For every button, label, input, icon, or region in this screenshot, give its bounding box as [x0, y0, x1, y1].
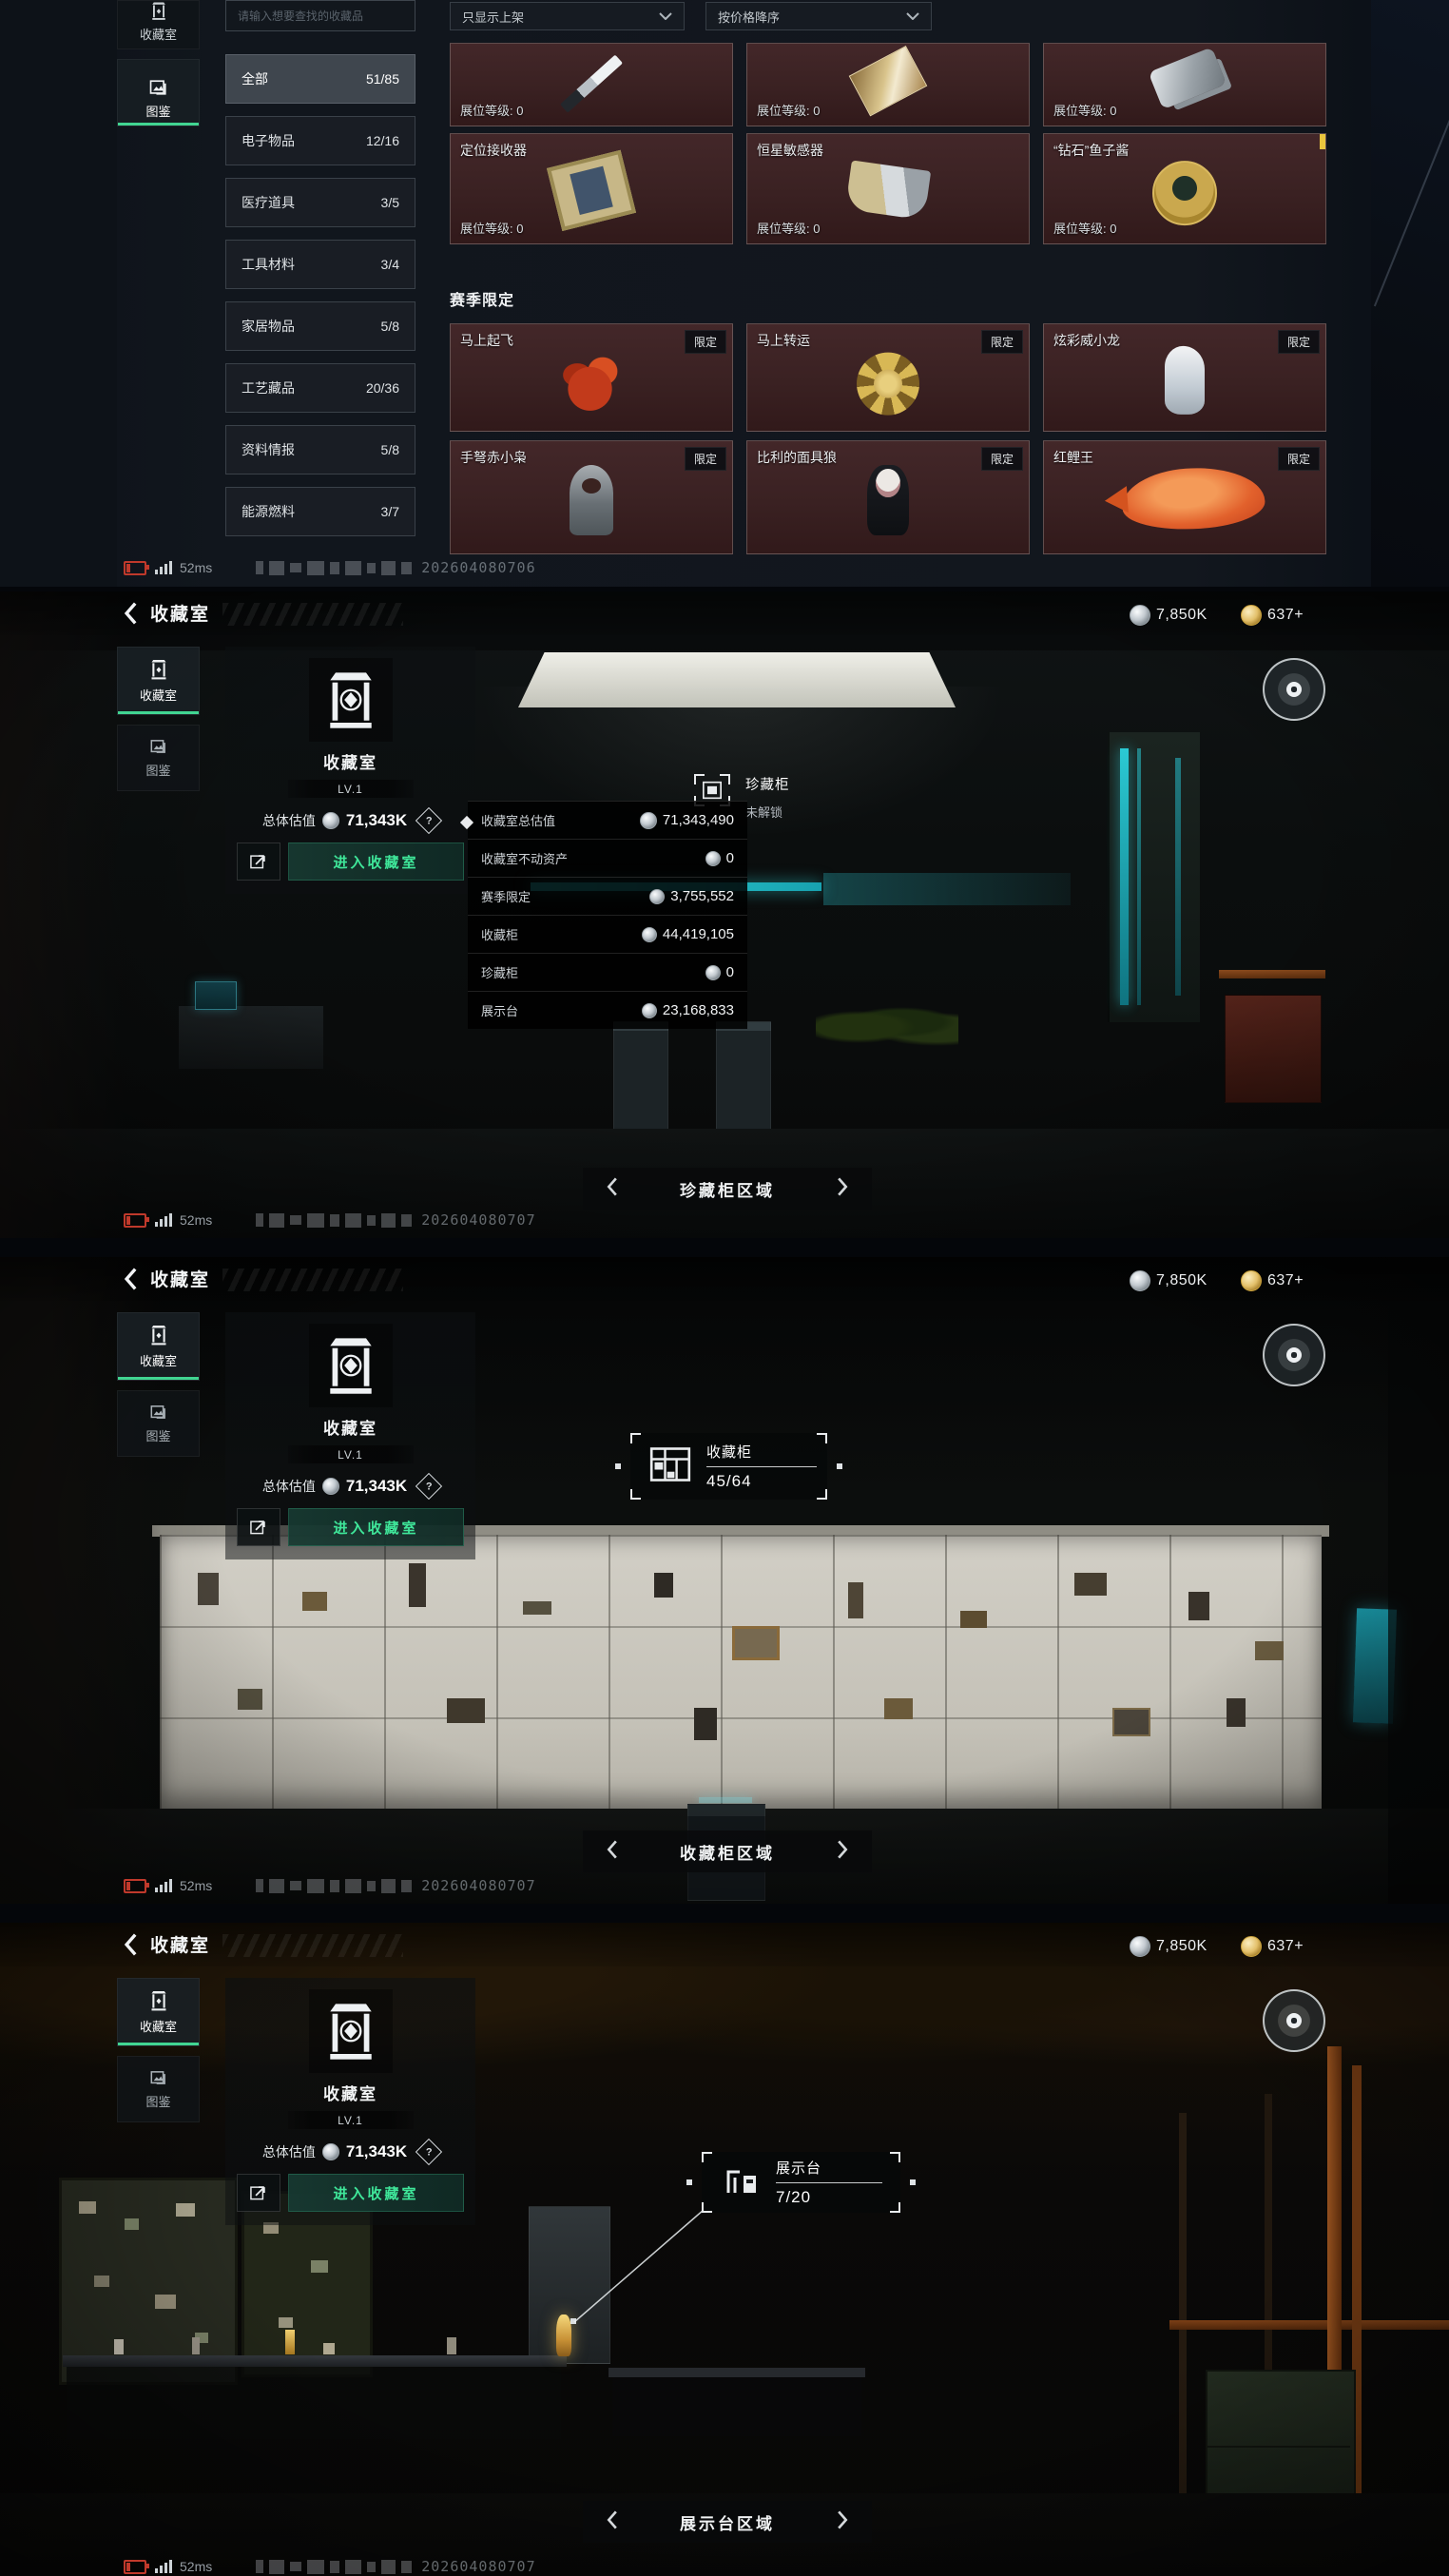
tab-collection-room[interactable]: 收藏室 — [117, 1978, 200, 2046]
ping-value: 52ms — [180, 1878, 212, 1893]
battery-icon — [124, 561, 146, 575]
tab-label: 图鉴 — [145, 761, 170, 779]
area-nav: 珍藏柜区域 — [583, 1168, 872, 1210]
area-name: 展示台区域 — [680, 2510, 775, 2534]
collection-room-big-icon — [324, 1335, 377, 1396]
tab-codex[interactable]: 图鉴 — [117, 59, 200, 126]
gold-coin-icon — [1241, 1270, 1262, 1291]
page-title: 收藏室 — [150, 600, 210, 626]
item-name: 恒星敏感器 — [757, 141, 823, 160]
marker-title: 展示台 — [776, 2158, 882, 2178]
collection-room-big-icon — [324, 669, 377, 730]
item-tile[interactable]: 展位等级: 0 — [450, 43, 733, 126]
battery-icon — [124, 2560, 146, 2574]
help-icon[interactable]: ? — [415, 1473, 442, 1500]
value-label: 总体估值 — [262, 1477, 316, 1496]
treasure-area-panel: 收藏室 7,850K 637+ 收藏室 图鉴 收藏室 LV.1 总体估值 71,… — [0, 591, 1449, 1238]
category-household[interactable]: 家居物品5/8 — [225, 301, 415, 351]
category-label: 资料情报 — [241, 440, 295, 459]
tooltip-row: 收藏室不动资产0 — [468, 839, 747, 877]
category-medical[interactable]: 医疗道具3/5 — [225, 178, 415, 227]
value-amount: 71,343K — [346, 1477, 407, 1496]
item-tile-diamond-caviar[interactable]: “钻石”鱼子酱 展位等级: 0 — [1043, 133, 1326, 244]
category-count: 3/4 — [381, 257, 399, 272]
tab-label: 收藏室 — [140, 2017, 177, 2035]
status-bar: 52ms 202604080707 — [124, 1877, 536, 1894]
battery-icon — [124, 1213, 146, 1228]
watermark-blocks — [256, 1879, 412, 1893]
silver-coin-icon — [642, 927, 657, 942]
watermark-number: 202604080707 — [421, 1877, 535, 1894]
tab-label: 图鉴 — [145, 1426, 170, 1444]
currency-silver[interactable]: 7,850K — [1130, 1936, 1207, 1957]
marker-title: 收藏柜 — [706, 1442, 817, 1462]
category-count: 3/5 — [381, 195, 399, 210]
room-total-value-row: 总体估值 71,343K ? — [225, 811, 475, 830]
tab-collection-room[interactable]: 收藏室 — [117, 1312, 200, 1381]
category-tools[interactable]: 工具材料3/4 — [225, 240, 415, 289]
app-root: 收藏室 图鉴 只显示上架 按价格降序 全部51/85 电子物品12/16 医疗道… — [0, 0, 1449, 2576]
watermark-number: 202604080706 — [421, 559, 535, 576]
room-title: 收藏室 — [225, 2081, 475, 2104]
category-count: 12/16 — [366, 133, 399, 148]
gold-coin-icon — [1241, 605, 1262, 626]
item-name: “钻石”鱼子酱 — [1053, 141, 1129, 160]
item-name: 马上转运 — [757, 331, 810, 350]
cabinet-count-marker[interactable]: 收藏柜 45/64 — [630, 1433, 827, 1500]
sort-label: 按价格降序 — [718, 8, 780, 26]
collection-room-icon — [150, 1, 167, 21]
marker-divider — [776, 2182, 882, 2183]
booth-level: 展位等级: 0 — [757, 101, 820, 119]
tooltip-row: 展示台23,168,833 — [468, 991, 747, 1029]
season-tile-red-carp[interactable]: 红鲤王 限定 — [1043, 440, 1326, 554]
back-button[interactable] — [122, 1932, 139, 1962]
back-button[interactable] — [122, 1267, 139, 1296]
filter-label: 只显示上架 — [462, 8, 524, 26]
room-icon-box — [309, 658, 393, 742]
red-horse-art — [556, 353, 627, 416]
gold-amount: 637+ — [1267, 1272, 1304, 1289]
tooltip-row: 赛季限定3,755,552 — [468, 877, 747, 915]
marker-count: 7/20 — [776, 2188, 882, 2207]
booth-level: 展位等级: 0 — [1053, 219, 1116, 237]
limited-badge: 限定 — [981, 447, 1023, 471]
cabinet-marker-icon — [649, 1446, 691, 1487]
silver-coin-icon — [705, 851, 721, 866]
ping-value: 52ms — [180, 2559, 212, 2574]
category-count: 51/85 — [366, 71, 399, 87]
category-intel[interactable]: 资料情报5/8 — [225, 425, 415, 475]
tab-label: 图鉴 — [145, 2092, 170, 2110]
tab-codex[interactable]: 图鉴 — [117, 1390, 200, 1457]
header-strip — [0, 1923, 1449, 1966]
currency-silver[interactable]: 7,850K — [1130, 605, 1207, 626]
season-tile-horse-takeoff[interactable]: 马上起飞 限定 — [450, 323, 733, 432]
codex-icon — [148, 77, 169, 98]
tab-codex[interactable]: 图鉴 — [117, 2056, 200, 2122]
watermark-blocks — [256, 1213, 412, 1228]
booth-level: 展位等级: 0 — [757, 219, 820, 237]
marker-texts: 展示台 7/20 — [776, 2158, 882, 2207]
star-sensor-art — [845, 160, 931, 220]
room-level-badge: LV.1 — [288, 1445, 414, 1463]
area-name: 收藏柜区域 — [680, 1840, 775, 1864]
category-all[interactable]: 全部51/85 — [225, 54, 415, 104]
codex-icon — [149, 737, 168, 756]
room-total-value-row: 总体估值 71,343K ? — [225, 2142, 475, 2161]
silver-amount: 7,850K — [1156, 607, 1207, 624]
prev-area-button[interactable] — [606, 1839, 618, 1865]
watermark-number: 202604080707 — [421, 1211, 535, 1229]
lightning-streak — [1374, 112, 1449, 307]
status-bar: 52ms 202604080707 — [124, 1211, 536, 1229]
vignette — [0, 1257, 1449, 1904]
next-area-button[interactable] — [837, 1839, 849, 1865]
marker-texts: 珍藏柜 未解锁 — [745, 774, 790, 821]
category-label: 工艺藏品 — [241, 378, 295, 397]
collection-room-big-icon — [324, 2001, 377, 2062]
room-icon-box — [309, 1324, 393, 1407]
prev-area-button[interactable] — [606, 1176, 618, 1202]
share-icon — [248, 2182, 269, 2203]
collection-room-icon — [149, 658, 168, 681]
puppet-figure-art — [867, 465, 909, 535]
title-hatch-decoration — [222, 1269, 403, 1291]
area-name: 珍藏柜区域 — [680, 1177, 775, 1201]
chevron-down-icon — [659, 12, 672, 20]
codex-icon — [149, 2068, 168, 2087]
area-nav: 展示台区域 — [583, 2501, 872, 2543]
scalpel-item-art — [560, 54, 623, 112]
enter-collection-room-button[interactable]: 进入收藏室 — [288, 843, 464, 881]
share-icon — [248, 851, 269, 872]
page-title: 收藏室 — [150, 1266, 210, 1291]
item-name: 炫彩威小龙 — [1053, 331, 1120, 350]
marker-subtitle: 未解锁 — [745, 803, 790, 821]
booth-level: 展位等级: 0 — [1053, 101, 1116, 119]
season-tile-horse-fortune[interactable]: 马上转运 限定 — [746, 323, 1030, 432]
active-tab-underline — [118, 123, 199, 126]
silver-coin-icon — [1130, 1270, 1150, 1291]
active-tab-underline — [118, 2043, 199, 2045]
tab-label: 收藏室 — [140, 686, 177, 704]
collection-room-icon — [149, 1989, 168, 2012]
silver-coin-icon — [705, 965, 721, 980]
active-tab-underline — [118, 711, 199, 714]
item-tile[interactable]: 展位等级: 0 — [746, 43, 1030, 126]
currency-gold[interactable]: 637+ — [1241, 605, 1304, 626]
marker-count: 45/64 — [706, 1472, 817, 1491]
silver-amount: 7,850K — [1156, 1272, 1207, 1289]
cabinet-area-panel: 收藏室 7,850K 637+ 收藏室 图鉴 收藏室 LV.1 总体估值 71,… — [0, 1257, 1449, 1904]
active-tab-underline — [118, 1377, 199, 1380]
ping-value: 52ms — [180, 560, 212, 575]
category-count: 3/7 — [381, 504, 399, 519]
status-bar: 52ms 202604080706 — [124, 559, 536, 576]
item-name: 手弩赤小枭 — [460, 448, 527, 467]
gold-card-item-art — [849, 46, 928, 116]
marker-divider — [706, 1466, 817, 1467]
battery-icon — [124, 1879, 146, 1893]
silver-coin-icon — [1130, 605, 1150, 626]
category-label: 能源燃料 — [241, 502, 295, 521]
category-label: 全部 — [241, 69, 268, 88]
category-electronics[interactable]: 电子物品12/16 — [225, 116, 415, 165]
search-box[interactable] — [225, 0, 415, 31]
booth-level: 展位等级: 0 — [460, 101, 523, 119]
tab-label: 收藏室 — [140, 25, 177, 43]
marker-title: 珍藏柜 — [745, 774, 790, 794]
item-tile-star-sensor[interactable]: 恒星敏感器 展位等级: 0 — [746, 133, 1030, 244]
watermark-number: 202604080707 — [421, 2558, 535, 2575]
enter-collection-room-button[interactable]: 进入收藏室 — [288, 1508, 464, 1546]
limited-badge: 限定 — [1278, 447, 1320, 471]
season-tile-billy-mask[interactable]: 比利的面具狼 限定 — [746, 440, 1030, 554]
silver-coin-icon — [649, 889, 665, 904]
room-title: 收藏室 — [225, 749, 475, 773]
vignette — [0, 1923, 1449, 2576]
room-level-badge: LV.1 — [288, 780, 414, 798]
category-energy[interactable]: 能源燃料3/7 — [225, 487, 415, 536]
caviar-tin-art — [1152, 161, 1217, 225]
back-button[interactable] — [122, 601, 139, 630]
gold-roulette-art — [857, 353, 919, 416]
tab-collection-room[interactable]: 收藏室 — [117, 647, 200, 715]
search-input[interactable] — [236, 9, 405, 24]
tooltip-row: 珍藏柜0 — [468, 953, 747, 991]
filter-onsale-dropdown[interactable]: 只显示上架 — [450, 2, 685, 30]
category-label: 电子物品 — [241, 131, 295, 150]
room-level-badge: LV.1 — [288, 2111, 414, 2129]
item-name: 定位接收器 — [460, 141, 527, 160]
title-hatch-decoration — [222, 1934, 403, 1957]
collection-room-icon — [149, 1324, 168, 1346]
share-button[interactable] — [237, 1508, 280, 1546]
room-icon-box — [309, 1989, 393, 2073]
category-label: 工具材料 — [241, 255, 295, 274]
next-area-button[interactable] — [837, 1176, 849, 1202]
compass-minimap-icon[interactable] — [1263, 658, 1325, 721]
gold-coin-icon — [1241, 1936, 1262, 1957]
value-label: 总体估值 — [262, 811, 316, 830]
dragon-figure-art — [1165, 346, 1205, 415]
catalog-left-margin — [0, 0, 117, 587]
help-icon[interactable]: ? — [415, 807, 442, 834]
share-button[interactable] — [237, 843, 280, 881]
gold-amount: 637+ — [1267, 1938, 1304, 1955]
share-icon — [248, 1517, 269, 1538]
item-name: 红鲤王 — [1053, 448, 1093, 467]
signal-bars-icon — [155, 2560, 172, 2573]
room-actions: 进入收藏室 — [225, 1508, 475, 1546]
season-tile-dragon[interactable]: 炫彩威小龙 限定 — [1043, 323, 1326, 432]
silver-coin-icon — [640, 812, 657, 829]
display-stand-marker-icon — [723, 2164, 761, 2201]
locator-receiver-art — [547, 149, 636, 230]
hooded-figure-art — [570, 465, 613, 535]
item-tile-locator-receiver[interactable]: 定位接收器 展位等级: 0 — [450, 133, 733, 244]
category-crafts[interactable]: 工艺藏品20/36 — [225, 363, 415, 413]
room-title: 收藏室 — [225, 1415, 475, 1439]
help-icon[interactable]: ? — [415, 2139, 442, 2165]
signal-bars-icon — [155, 1213, 172, 1227]
scene-cabinet-area — [0, 1257, 1449, 1904]
currency-silver[interactable]: 7,850K — [1130, 1270, 1207, 1291]
chevron-down-icon — [906, 12, 919, 20]
currency-gold[interactable]: 637+ — [1241, 1270, 1304, 1291]
category-label: 医疗道具 — [241, 193, 295, 212]
scene-display-stand-area — [0, 1923, 1449, 2576]
marker-texts: 收藏柜 45/64 — [706, 1442, 817, 1491]
status-bar: 52ms 202604080707 — [124, 2558, 536, 2575]
header-strip — [0, 1257, 1449, 1301]
compass-minimap-icon[interactable] — [1263, 1989, 1325, 2052]
season-limited-header: 赛季限定 — [450, 287, 514, 310]
next-area-button[interactable] — [837, 2509, 849, 2535]
category-count: 20/36 — [366, 380, 399, 396]
catalog-panel: 收藏室 图鉴 只显示上架 按价格降序 全部51/85 电子物品12/16 医疗道… — [0, 0, 1449, 587]
room-actions: 进入收藏室 — [225, 843, 475, 881]
value-amount: 71,343K — [346, 811, 407, 830]
share-button[interactable] — [237, 2174, 280, 2212]
silver-coin-icon — [1130, 1936, 1150, 1957]
room-info-panel: 收藏室 LV.1 总体估值 71,343K ? 进入收藏室 — [225, 1312, 475, 1559]
silver-coin-icon — [322, 2143, 339, 2160]
enter-collection-room-button[interactable]: 进入收藏室 — [288, 2174, 464, 2212]
display-stand-count-marker[interactable]: 展示台 7/20 — [702, 2152, 900, 2213]
signal-bars-icon — [155, 561, 172, 574]
tab-collection-room[interactable]: 收藏室 — [117, 0, 200, 49]
limited-badge: 限定 — [685, 330, 726, 354]
category-count: 5/8 — [381, 442, 399, 457]
gold-amount: 637+ — [1267, 607, 1304, 624]
area-nav: 收藏柜区域 — [583, 1830, 872, 1872]
room-info-panel: 收藏室 LV.1 总体估值 71,343K ? 进入收藏室 — [225, 1978, 475, 2225]
tooltip-row: 收藏室总估值71,343,490 — [468, 801, 747, 839]
watermark-blocks — [256, 2560, 412, 2574]
silver-coin-icon — [322, 1478, 339, 1495]
page-title: 收藏室 — [150, 1931, 210, 1957]
codex-icon — [149, 1403, 168, 1422]
value-amount: 71,343K — [346, 2142, 407, 2161]
item-name: 比利的面具狼 — [757, 448, 837, 467]
silver-coin-icon — [642, 1003, 657, 1018]
watermark-blocks — [256, 561, 412, 575]
sort-dropdown[interactable]: 按价格降序 — [705, 2, 932, 30]
signal-bars-icon — [155, 1879, 172, 1892]
header-strip — [0, 591, 1449, 635]
item-tile[interactable]: 展位等级: 0 — [1043, 43, 1326, 126]
silver-coin-icon — [322, 812, 339, 829]
room-actions: 进入收藏室 — [225, 2174, 475, 2212]
limited-badge: 限定 — [685, 447, 726, 471]
ping-value: 52ms — [180, 1212, 212, 1228]
category-count: 5/8 — [381, 319, 399, 334]
tab-codex[interactable]: 图鉴 — [117, 725, 200, 791]
tooltip-row: 收藏柜44,419,105 — [468, 915, 747, 953]
valuation-tooltip: 收藏室总估值71,343,490 收藏室不动资产0 赛季限定3,755,552 … — [468, 801, 747, 1029]
value-label: 总体估值 — [262, 2142, 316, 2161]
silver-amount: 7,850K — [1156, 1938, 1207, 1955]
limited-badge: 限定 — [981, 330, 1023, 354]
compass-minimap-icon[interactable] — [1263, 1324, 1325, 1386]
limited-badge: 限定 — [1278, 330, 1320, 354]
new-item-marker — [1320, 134, 1325, 149]
room-info-panel: 收藏室 LV.1 总体估值 71,343K ? 进入收藏室 — [225, 647, 475, 894]
display-stand-area-panel: 收藏室 7,850K 637+ 收藏室 图鉴 收藏室 LV.1 总体估值 71,… — [0, 1923, 1449, 2576]
red-carp-art — [1120, 463, 1266, 533]
silver-device-item-art — [1149, 47, 1227, 109]
tab-label: 图鉴 — [145, 102, 170, 120]
season-tile-crossbow-owl[interactable]: 手弩赤小枭 限定 — [450, 440, 733, 554]
prev-area-button[interactable] — [606, 2509, 618, 2535]
title-hatch-decoration — [222, 603, 403, 626]
currency-gold[interactable]: 637+ — [1241, 1936, 1304, 1957]
storm-backdrop — [1371, 0, 1449, 587]
booth-level: 展位等级: 0 — [460, 219, 523, 237]
item-name: 马上起飞 — [460, 331, 513, 350]
category-label: 家居物品 — [241, 317, 295, 336]
room-total-value-row: 总体估值 71,343K ? — [225, 1477, 475, 1496]
tab-label: 收藏室 — [140, 1351, 177, 1369]
